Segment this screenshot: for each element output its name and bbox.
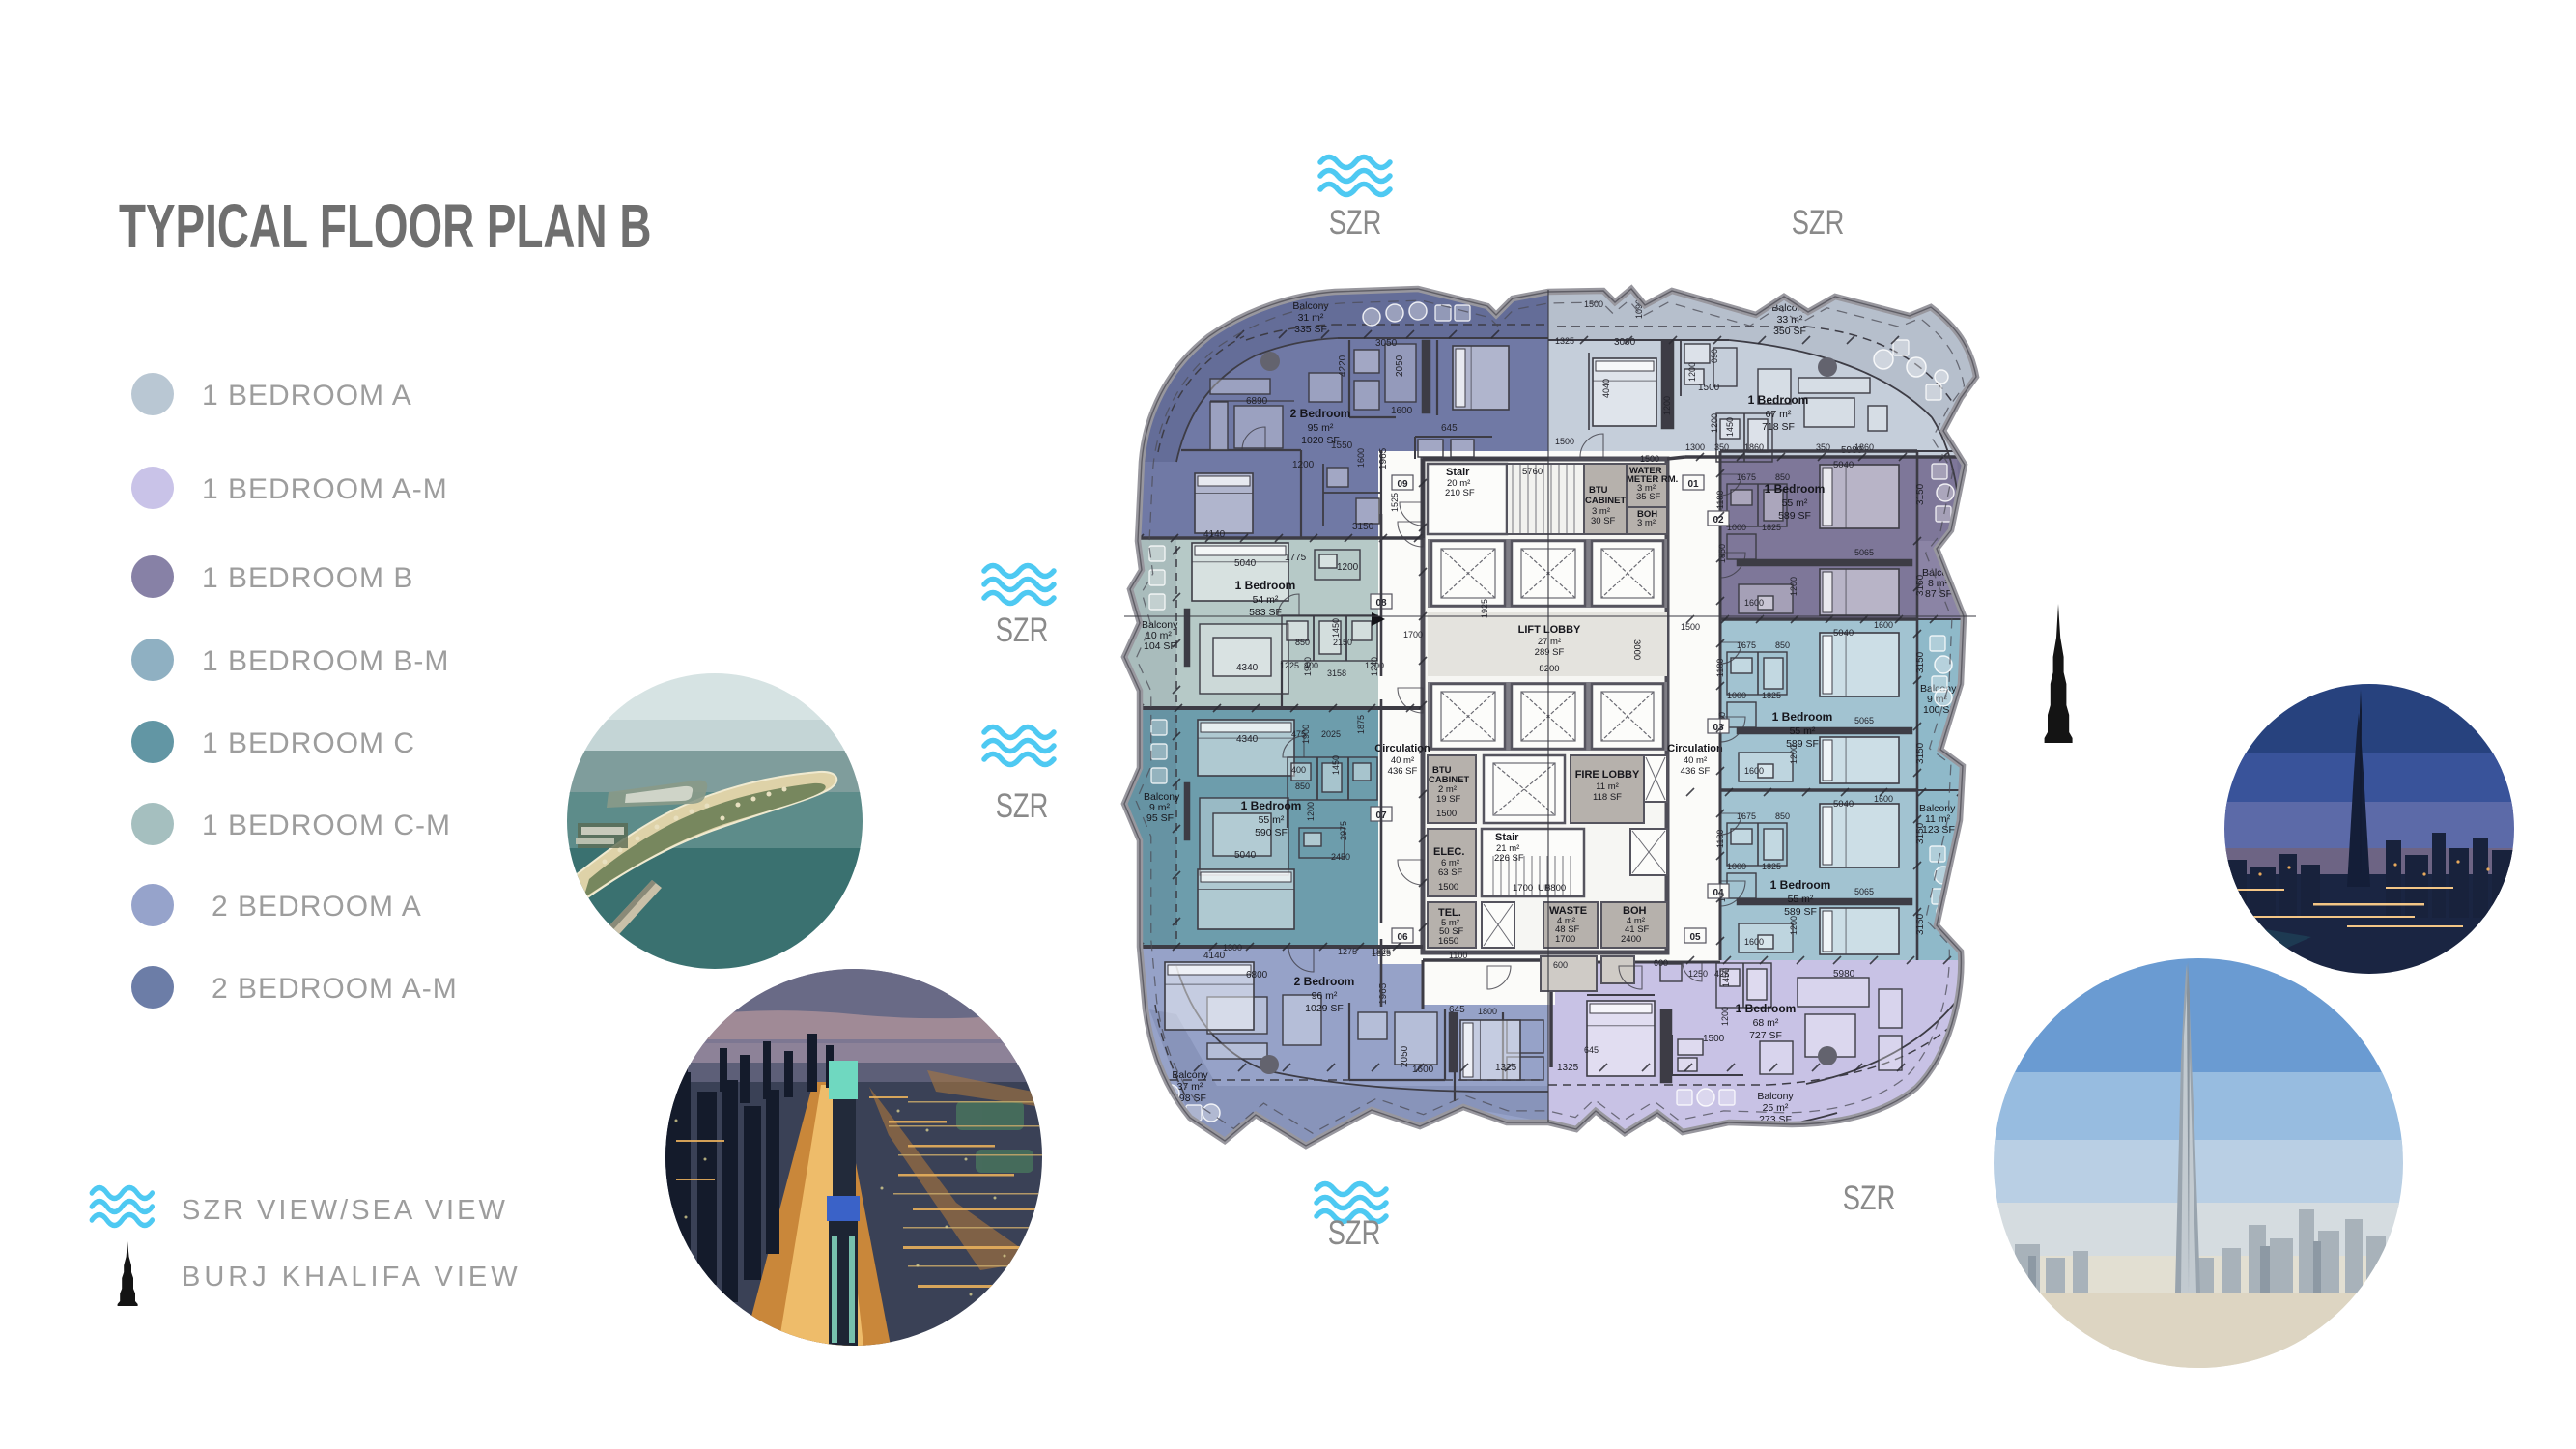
svg-text:5040: 5040	[1833, 799, 1854, 810]
svg-text:54 m²: 54 m²	[1253, 594, 1279, 606]
svg-text:1029 SF: 1029 SF	[1305, 1003, 1344, 1014]
svg-text:1600: 1600	[1874, 620, 1893, 630]
svg-text:850: 850	[1775, 640, 1790, 650]
svg-text:6890: 6890	[1246, 396, 1268, 407]
svg-text:3100: 3100	[1124, 472, 1135, 495]
svg-text:5065: 5065	[1854, 716, 1874, 725]
svg-text:SZR VIEW/SEA VIEW: SZR VIEW/SEA VIEW	[182, 1195, 508, 1226]
svg-text:1 BEDROOM C-M: 1 BEDROOM C-M	[202, 810, 451, 841]
svg-text:1 Bedroom: 1 Bedroom	[1765, 482, 1826, 496]
svg-text:1500: 1500	[1703, 1034, 1725, 1044]
svg-text:68 m²: 68 m²	[1753, 1017, 1779, 1029]
svg-text:727 SF: 727 SF	[1749, 1030, 1782, 1041]
svg-text:1800: 1800	[1478, 1007, 1497, 1016]
svg-text:2400: 2400	[1621, 934, 1641, 945]
svg-text:1200: 1200	[1306, 802, 1316, 821]
svg-text:19 SF: 19 SF	[1436, 794, 1461, 805]
svg-text:55 m²: 55 m²	[1782, 497, 1808, 509]
svg-text:1500: 1500	[1640, 454, 1659, 464]
svg-text:1 Bedroom: 1 Bedroom	[1235, 579, 1296, 592]
svg-text:1 BEDROOM C: 1 BEDROOM C	[202, 727, 415, 759]
svg-text:645: 645	[1449, 1005, 1465, 1015]
svg-text:55 m²: 55 m²	[1788, 894, 1814, 905]
svg-text:1500: 1500	[1438, 882, 1458, 893]
svg-text:2 Bedroom: 2 Bedroom	[1290, 407, 1351, 420]
svg-text:3000: 3000	[1631, 639, 1642, 660]
svg-text:600: 600	[1654, 958, 1668, 968]
svg-text:1600: 1600	[1744, 598, 1764, 608]
svg-text:3100: 3100	[1124, 963, 1135, 985]
svg-text:1500: 1500	[1436, 809, 1457, 819]
svg-text:BTU: BTU	[1589, 485, 1608, 496]
svg-text:3150: 3150	[1352, 522, 1374, 532]
svg-text:1 BEDROOM A: 1 BEDROOM A	[202, 380, 412, 412]
svg-text:3150: 3150	[1915, 483, 1926, 505]
svg-text:118 SF: 118 SF	[1593, 792, 1622, 803]
svg-text:3050: 3050	[1375, 338, 1398, 349]
svg-text:63 SF: 63 SF	[1438, 867, 1463, 878]
svg-text:850: 850	[1775, 811, 1790, 821]
svg-text:1300: 1300	[1223, 943, 1242, 952]
svg-text:589 SF: 589 SF	[1778, 510, 1811, 522]
svg-text:1600: 1600	[1744, 766, 1764, 776]
svg-text:1900: 1900	[1303, 657, 1313, 676]
svg-text:289 SF: 289 SF	[1535, 647, 1565, 658]
svg-text:350: 350	[1816, 442, 1830, 452]
svg-text:Circulation: Circulation	[1667, 743, 1723, 754]
svg-text:5040: 5040	[1833, 628, 1854, 639]
svg-text:1325: 1325	[1495, 1063, 1517, 1073]
svg-text:2 BEDROOM A: 2 BEDROOM A	[212, 891, 422, 923]
svg-text:1 Bedroom: 1 Bedroom	[1770, 878, 1831, 892]
svg-text:1825: 1825	[1762, 862, 1781, 871]
svg-text:SZR: SZR	[996, 611, 1049, 649]
svg-text:104 SF: 104 SF	[1144, 640, 1176, 652]
svg-text:SZR: SZR	[1329, 204, 1382, 241]
svg-text:5040: 5040	[1234, 558, 1257, 569]
svg-text:1450: 1450	[1725, 417, 1735, 437]
svg-text:Balcony: Balcony	[1292, 300, 1329, 312]
svg-text:33 m²: 33 m²	[1777, 314, 1803, 326]
svg-text:1600: 1600	[1391, 406, 1413, 416]
svg-text:4040: 4040	[1601, 379, 1611, 398]
svg-text:95 m²: 95 m²	[1308, 422, 1334, 434]
svg-text:06: 06	[1397, 932, 1408, 943]
svg-text:645: 645	[1584, 1045, 1599, 1055]
svg-text:1200: 1200	[1292, 460, 1315, 470]
svg-text:1000: 1000	[1727, 523, 1746, 532]
svg-text:1 BEDROOM B: 1 BEDROOM B	[202, 562, 413, 594]
svg-text:590 SF: 590 SF	[1255, 827, 1288, 838]
svg-text:FIRE LOBBY: FIRE LOBBY	[1575, 769, 1640, 781]
svg-text:1200: 1200	[1720, 1007, 1730, 1026]
svg-text:335 SF: 335 SF	[1294, 324, 1327, 335]
svg-text:3158: 3158	[1327, 668, 1346, 678]
svg-text:4140: 4140	[1203, 529, 1226, 540]
svg-text:1825: 1825	[1762, 523, 1781, 532]
svg-text:40 m²: 40 m²	[1684, 755, 1707, 766]
svg-text:96 m²: 96 m²	[1312, 990, 1338, 1002]
svg-text:1700: 1700	[1555, 934, 1575, 945]
svg-text:1600: 1600	[1744, 937, 1764, 947]
svg-text:3 m²: 3 m²	[1637, 518, 1656, 528]
svg-text:4340: 4340	[1236, 663, 1259, 673]
svg-text:37 m²: 37 m²	[1177, 1081, 1203, 1093]
svg-text:1200: 1200	[1789, 916, 1798, 935]
svg-text:ELEC.: ELEC.	[1433, 846, 1464, 858]
svg-text:1450: 1450	[1331, 755, 1341, 775]
svg-text:Circulation: Circulation	[1374, 743, 1430, 754]
svg-text:2 BEDROOM A-M: 2 BEDROOM A-M	[212, 973, 458, 1005]
svg-text:5040: 5040	[1833, 460, 1854, 470]
svg-text:600: 600	[1553, 960, 1568, 970]
svg-text:SZR: SZR	[996, 787, 1049, 825]
svg-text:1525: 1525	[1390, 493, 1400, 512]
svg-text:1900: 1900	[1301, 724, 1311, 744]
svg-text:436 SF: 436 SF	[1388, 766, 1418, 777]
svg-text:5065: 5065	[1854, 887, 1874, 896]
svg-text:1500: 1500	[1681, 622, 1700, 632]
svg-text:1 Bedroom: 1 Bedroom	[1772, 710, 1833, 724]
svg-text:589 SF: 589 SF	[1784, 906, 1817, 918]
svg-text:718 SF: 718 SF	[1762, 421, 1795, 433]
svg-text:1775: 1775	[1285, 553, 1307, 563]
svg-text:1200: 1200	[1337, 562, 1359, 573]
svg-text:850: 850	[1295, 781, 1310, 791]
svg-text:BURJ KHALIFA VIEW: BURJ KHALIFA VIEW	[182, 1262, 522, 1293]
svg-text:87 SF: 87 SF	[1925, 588, 1952, 600]
svg-text:5040: 5040	[1234, 850, 1257, 861]
svg-text:SZR: SZR	[1328, 1214, 1381, 1252]
svg-text:123 SF: 123 SF	[1922, 824, 1955, 836]
svg-text:5760: 5760	[1522, 467, 1543, 477]
svg-text:1550: 1550	[1331, 440, 1353, 451]
svg-text:2150: 2150	[1333, 638, 1352, 647]
svg-text:850: 850	[1295, 638, 1310, 647]
svg-text:4220: 4220	[1338, 355, 1348, 377]
svg-text:1275: 1275	[1338, 947, 1357, 956]
svg-text:1925: 1925	[1480, 599, 1489, 618]
svg-text:1 BEDROOM B-M: 1 BEDROOM B-M	[202, 645, 449, 677]
svg-text:35 SF: 35 SF	[1636, 492, 1661, 502]
svg-text:3000: 3000	[1614, 337, 1636, 348]
svg-text:3150: 3150	[1915, 651, 1926, 673]
svg-text:1100: 1100	[1449, 951, 1467, 960]
svg-text:Balcony: Balcony	[1757, 1091, 1794, 1102]
svg-text:SZR: SZR	[1843, 1179, 1896, 1217]
svg-text:5065: 5065	[1854, 548, 1874, 557]
svg-text:40 m²: 40 m²	[1391, 755, 1414, 766]
svg-text:1600: 1600	[1412, 1065, 1434, 1075]
svg-text:67 m²: 67 m²	[1766, 409, 1792, 420]
svg-text:05: 05	[1689, 932, 1701, 943]
svg-text:LIFT LOBBY: LIFT LOBBY	[1518, 624, 1581, 636]
svg-text:2025: 2025	[1321, 729, 1341, 739]
svg-text:02: 02	[1713, 515, 1724, 526]
svg-text:2450: 2450	[1331, 852, 1350, 862]
svg-text:226 SF: 226 SF	[1494, 853, 1524, 864]
svg-text:1600: 1600	[1874, 794, 1893, 804]
svg-text:1700: 1700	[1403, 630, 1423, 639]
svg-text:1325: 1325	[1555, 336, 1574, 346]
svg-text:1965: 1965	[1378, 447, 1389, 469]
svg-text:11 m²: 11 m²	[1596, 781, 1619, 792]
svg-text:1250: 1250	[1688, 969, 1708, 979]
svg-text:1 Bedroom: 1 Bedroom	[1736, 1002, 1797, 1015]
svg-text:55 m²: 55 m²	[1259, 814, 1285, 826]
svg-text:1450: 1450	[1721, 968, 1731, 987]
svg-text:03: 03	[1713, 723, 1724, 733]
svg-text:1000: 1000	[1727, 691, 1746, 700]
svg-text:210 SF: 210 SF	[1445, 488, 1475, 498]
svg-text:6800: 6800	[1246, 970, 1268, 980]
svg-text:4340: 4340	[1236, 734, 1259, 745]
svg-text:1240: 1240	[1370, 657, 1379, 676]
svg-text:1500: 1500	[1555, 437, 1574, 446]
svg-text:1860: 1860	[1854, 442, 1874, 452]
svg-text:1500: 1500	[1698, 383, 1720, 393]
svg-text:1200: 1200	[1687, 362, 1697, 382]
svg-text:1200: 1200	[1710, 413, 1719, 433]
svg-text:1965: 1965	[1378, 982, 1389, 1005]
svg-text:27 m²: 27 m²	[1538, 637, 1561, 647]
svg-text:3400: 3400	[1124, 876, 1135, 898]
svg-text:1200: 1200	[1662, 396, 1672, 415]
svg-text:2050: 2050	[1400, 1045, 1410, 1067]
svg-text:2 Bedroom: 2 Bedroom	[1294, 975, 1355, 988]
svg-text:01: 01	[1687, 479, 1699, 490]
svg-text:436 SF: 436 SF	[1681, 766, 1711, 777]
svg-text:1 BEDROOM A-M: 1 BEDROOM A-M	[202, 473, 448, 505]
svg-text:3150: 3150	[1915, 742, 1926, 764]
svg-text:1450: 1450	[1331, 618, 1341, 638]
svg-text:3150: 3150	[1915, 913, 1926, 935]
svg-text:5980: 5980	[1833, 969, 1855, 980]
svg-text:1225: 1225	[1280, 661, 1299, 670]
svg-text:1500: 1500	[1584, 299, 1603, 309]
svg-text:1325: 1325	[1557, 1063, 1579, 1073]
svg-text:SZR: SZR	[1792, 204, 1845, 241]
svg-text:350 SF: 350 SF	[1773, 326, 1806, 337]
svg-text:55 m²: 55 m²	[1790, 725, 1816, 737]
svg-text:1600: 1600	[1356, 448, 1366, 468]
svg-text:645: 645	[1441, 423, 1458, 434]
svg-text:31 m²: 31 m²	[1298, 312, 1324, 324]
svg-text:TYPICAL FLOOR PLAN B: TYPICAL FLOOR PLAN B	[119, 192, 651, 261]
svg-text:589 SF: 589 SF	[1786, 738, 1819, 750]
svg-text:8200: 8200	[1539, 664, 1559, 674]
svg-text:1000: 1000	[1727, 862, 1746, 871]
svg-text:1 Bedroom: 1 Bedroom	[1241, 799, 1302, 812]
svg-text:30 SF: 30 SF	[1591, 516, 1616, 526]
svg-text:1300: 1300	[1685, 442, 1705, 452]
svg-text:1650: 1650	[1438, 936, 1458, 947]
svg-text:09: 09	[1397, 479, 1408, 490]
svg-text:2050: 2050	[1395, 355, 1405, 377]
svg-text:400: 400	[1291, 765, 1306, 775]
svg-text:3000: 3000	[1124, 741, 1135, 763]
svg-text:1 Bedroom: 1 Bedroom	[1748, 393, 1809, 407]
svg-text:090: 090	[1710, 349, 1719, 363]
svg-text:2975: 2975	[1339, 821, 1348, 840]
svg-text:1825: 1825	[1762, 691, 1781, 700]
svg-text:1200: 1200	[1789, 577, 1798, 596]
svg-text:Stair: Stair	[1495, 832, 1519, 843]
svg-text:Stair: Stair	[1446, 467, 1470, 478]
svg-text:95 SF: 95 SF	[1146, 812, 1174, 824]
svg-text:1700: 1700	[1513, 883, 1533, 894]
svg-text:CABINET: CABINET	[1585, 496, 1626, 506]
svg-text:850: 850	[1775, 472, 1790, 482]
svg-text:1875: 1875	[1356, 715, 1366, 734]
